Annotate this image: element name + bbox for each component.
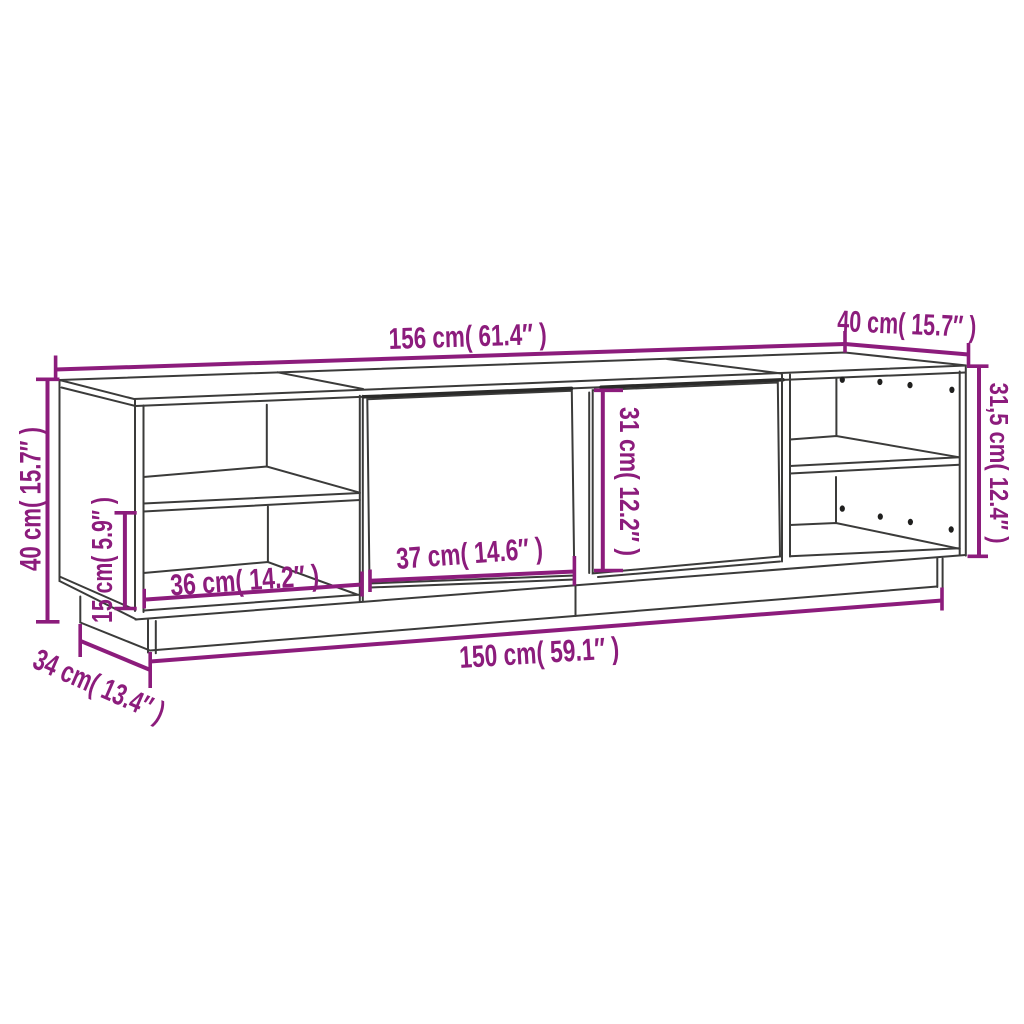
svg-text:31,5 cm( 12.4″ ): 31,5 cm( 12.4″ ) [984,383,1012,544]
svg-text:31 cm( 12.2″ ): 31 cm( 12.2″ ) [614,407,645,556]
svg-text:15 cm( 5.9″ ): 15 cm( 5.9″ ) [87,497,119,623]
svg-text:40 cm( 15.7″ ): 40 cm( 15.7″ ) [837,305,977,344]
svg-text:40 cm( 15.7″ ): 40 cm( 15.7″ ) [15,427,48,571]
svg-text:156 cm( 61.4″ ): 156 cm( 61.4″ ) [388,318,547,356]
